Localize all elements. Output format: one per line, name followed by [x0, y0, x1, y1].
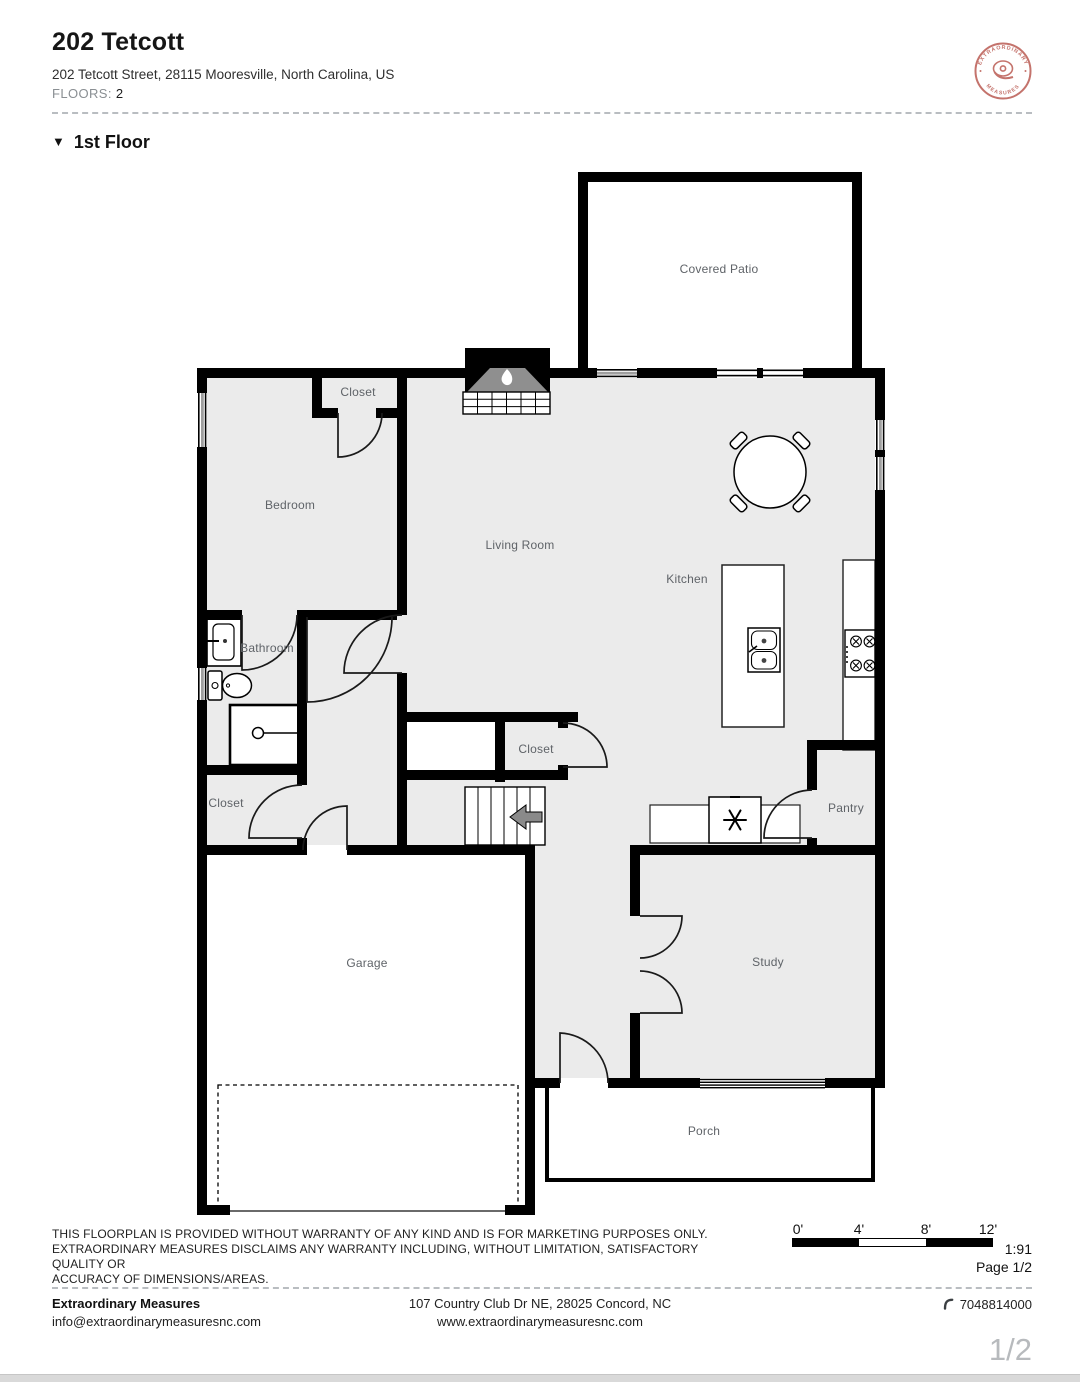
room-label-bathroom: Bathroom: [240, 641, 294, 655]
scale-page-label: Page 1/2: [976, 1259, 1032, 1275]
kitchen-sink: [748, 628, 780, 672]
bottom-bar: [0, 1374, 1080, 1382]
room-label-porch: Porch: [688, 1124, 720, 1138]
fireplace: [463, 348, 550, 414]
scale-tick-0: 0': [793, 1221, 803, 1237]
window-bathroom-left: [197, 668, 207, 700]
scale-strip: [792, 1238, 993, 1247]
room-label-kitchen: Kitchen: [666, 572, 707, 586]
scale-tick-8: 8': [921, 1221, 931, 1237]
floorplan-document-page: 202 Tetcott 202 Tetcott Street, 28115 Mo…: [0, 0, 1080, 1382]
footer-address-block: 107 Country Club Dr NE, 28025 Concord, N…: [240, 1296, 840, 1329]
room-label-living-room: Living Room: [486, 538, 555, 552]
phone-icon: [942, 1298, 955, 1311]
footer-phone-block: 7048814000: [942, 1297, 1032, 1312]
toilet: [208, 671, 252, 700]
room-label-pantry: Pantry: [828, 801, 864, 815]
room-label-covered-patio: Covered Patio: [680, 262, 759, 276]
window-study-bottom: [700, 1078, 825, 1088]
floorplan-drawing: Covered Patio Closet Bedroom Living Room…: [0, 0, 1080, 1382]
scale-ratio: 1:91: [1005, 1241, 1032, 1257]
room-label-bedroom: Bedroom: [265, 498, 315, 512]
footer-office-address: 107 Country Club Dr NE, 28025 Concord, N…: [240, 1296, 840, 1311]
window-bedroom-left: [197, 393, 207, 447]
disclaimer: THIS FLOORPLAN IS PROVIDED WITHOUT WARRA…: [52, 1227, 712, 1287]
shower: [230, 705, 300, 765]
bathroom-vanity: [207, 618, 241, 666]
stove: [845, 630, 875, 677]
scale-tick-12: 12': [979, 1221, 997, 1237]
under-stair-storage: [407, 722, 495, 770]
footer-website[interactable]: www.extraordinarymeasuresnc.com: [240, 1314, 840, 1329]
page-indicator: 1/2: [989, 1332, 1032, 1368]
footer-company-name: Extraordinary Measures: [52, 1296, 261, 1311]
scale-bar: 0' 4' 8' 12': [792, 1221, 993, 1247]
window-patio-wall: [597, 368, 637, 378]
scale-tick-4: 4': [854, 1221, 864, 1237]
window-kitchen-right: [875, 420, 885, 490]
footer-email[interactable]: info@extraordinarymeasuresnc.com: [52, 1314, 261, 1329]
scale-tick-labels: 0' 4' 8' 12': [792, 1221, 993, 1236]
divider-bottom: [52, 1287, 1032, 1289]
footer-company-block: Extraordinary Measures info@extraordinar…: [52, 1296, 261, 1329]
disclaimer-line-3: ACCURACY OF DIMENSIONS/AREAS.: [52, 1272, 712, 1287]
footer-phone-number[interactable]: 7048814000: [960, 1297, 1032, 1312]
dining-table: [729, 431, 811, 513]
disclaimer-line-2: EXTRAORDINARY MEASURES DISCLAIMS ANY WAR…: [52, 1242, 712, 1272]
room-label-closet-bedroom: Closet: [340, 385, 376, 399]
room-label-closet-hall: Closet: [518, 742, 554, 756]
stairs: [465, 787, 545, 845]
kitchen-island: [722, 565, 784, 727]
room-label-study: Study: [752, 955, 784, 969]
room-label-closet-entry: Closet: [208, 796, 244, 810]
hearth-grid: [463, 392, 550, 414]
room-label-garage: Garage: [346, 956, 387, 970]
disclaimer-line-1: THIS FLOORPLAN IS PROVIDED WITHOUT WARRA…: [52, 1227, 712, 1242]
kitchen-counter: [843, 560, 875, 750]
